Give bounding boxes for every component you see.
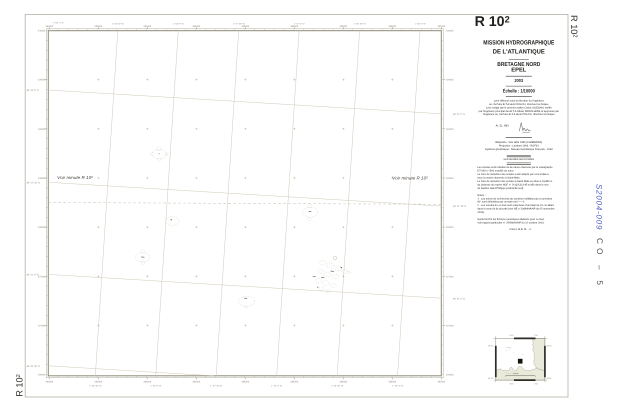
svg-text:427000: 427000 (446, 324, 454, 327)
svg-text:48°40': 48°40' (546, 344, 552, 347)
svg-text:430000: 430000 (446, 30, 454, 33)
svg-text:427500: 427500 (38, 275, 46, 278)
svg-text:1° 58' 0" W: 1° 58' 0" W (150, 384, 162, 387)
svg-text:285500: 285500 (291, 380, 299, 383)
svg-text:48° 41' 0" N: 48° 41' 0" N (26, 274, 38, 277)
svg-text:284500: 284500 (193, 380, 201, 383)
svg-text:286500: 286500 (389, 380, 397, 383)
svg-text:1° 56' 30" W: 1° 56' 30" W (354, 22, 367, 25)
svg-text:l'ingénieur en chef des E.T.A: l'ingénieur en chef des E.T.A Henri DOLO… (483, 113, 555, 116)
svg-text:284000: 284000 (144, 380, 152, 383)
svg-text:48°40': 48°40' (488, 344, 494, 347)
svg-text:428000: 428000 (38, 226, 46, 229)
svg-text:du bastion Saint-Philippe (ext: du bastion Saint-Philippe (extrémité sud… (477, 187, 524, 190)
svg-text:287000: 287000 (438, 380, 446, 383)
svg-text:Les sondes sont réelles: Les sondes sont réelles (504, 157, 535, 161)
svg-text:48° 41' 30" N: 48° 41' 30" N (453, 205, 467, 208)
svg-text:1°50': 1°50' (534, 383, 539, 386)
svg-text:R 102: R 102 (15, 374, 25, 397)
svg-text:48° 42' 0" N: 48° 42' 0" N (453, 113, 465, 116)
svg-text:1° 57' 30" W: 1° 57' 30" W (210, 384, 223, 387)
svg-text:48° 41' 30" N: 48° 41' 30" N (26, 181, 40, 184)
svg-text:CO – 5: CO – 5 (595, 238, 604, 289)
svg-text:2°00': 2°00' (509, 383, 514, 386)
svg-text:285000: 285000 (242, 25, 250, 28)
svg-text:1° 56' 30" W: 1° 56' 30" W (331, 384, 344, 387)
svg-text:1° 57' 30" W: 1° 57' 30" W (233, 22, 246, 25)
svg-text:DE L'ATLANTIQUE: DE L'ATLANTIQUE (493, 49, 545, 56)
svg-text:Voir minute R 10²: Voir minute R 10² (392, 176, 428, 181)
svg-text:428000: 428000 (446, 226, 454, 229)
svg-text:1°50': 1°50' (534, 334, 539, 337)
svg-text:283500: 283500 (95, 25, 103, 28)
svg-text:R 102: R 102 (475, 14, 510, 30)
svg-text:1° 58' 30" W: 1° 58' 30" W (89, 384, 102, 387)
svg-text:Ar. 21. 683: Ar. 21. 683 (496, 124, 510, 127)
svg-text:286500: 286500 (389, 25, 397, 28)
svg-text:429000: 429000 (38, 128, 46, 131)
svg-text:S2004-009: S2004-009 (594, 184, 603, 230)
svg-text:2003: 2003 (515, 78, 524, 83)
svg-text:1° 56' 0" W: 1° 56' 0" W (415, 22, 427, 25)
svg-text:283500: 283500 (95, 380, 103, 383)
svg-text:1° 56' 0" W: 1° 56' 0" W (392, 384, 404, 387)
svg-text:48° 42' 0" N: 48° 42' 0" N (26, 89, 38, 92)
svg-text:3 Sect. M.B. M. - 3: 3 Sect. M.B. M. - 3 (509, 228, 531, 231)
svg-text:dans le sens de la sécurité (v: dans le sens de la sécurité (voir NE n°1… (477, 208, 555, 211)
svg-text:285500: 285500 (291, 25, 299, 28)
svg-text:284000: 284000 (144, 25, 152, 28)
svg-text:Système géodésique : Réseau Gé: Système géodésique : Réseau Géodésique F… (485, 148, 553, 151)
svg-text:428500: 428500 (38, 177, 46, 180)
svg-text:1° 58' 0" W: 1° 58' 0" W (173, 22, 185, 25)
svg-text:48°35': 48°35' (546, 377, 552, 380)
svg-text:429500: 429500 (446, 79, 454, 82)
svg-text:427000: 427000 (38, 324, 46, 327)
svg-text:429000: 429000 (446, 128, 454, 131)
svg-text:286000: 286000 (340, 25, 348, 28)
svg-text:284500: 284500 (193, 25, 201, 28)
svg-text:48° 40' 30" N: 48° 40' 30" N (26, 365, 40, 368)
svg-text:Voir rapport particulier n° 25: Voir rapport particulier n° 256/MHA/NP d… (477, 221, 544, 224)
svg-text:Voir minute R 10²: Voir minute R 10² (57, 175, 93, 180)
svg-text:287000: 287000 (438, 25, 446, 28)
svg-text:R 102: R 102 (569, 15, 579, 38)
svg-text:1° 59' 2" W: 1° 59' 2" W (53, 22, 65, 25)
svg-text:1° 57' 0" W: 1° 57' 0" W (271, 384, 283, 387)
svg-text:428500: 428500 (446, 177, 454, 180)
svg-text:429500: 429500 (38, 79, 46, 82)
svg-text:430000: 430000 (38, 30, 46, 33)
svg-text:1° 58' 30" W: 1° 58' 30" W (112, 22, 125, 25)
svg-text:EPEL: EPEL (511, 68, 527, 74)
svg-text:48°35': 48°35' (488, 377, 494, 380)
svg-text:1° 57' 0" W: 1° 57' 0" W (294, 22, 306, 25)
svg-text:48° 41' 0" N: 48° 41' 0" N (453, 297, 465, 300)
svg-text:283000: 283000 (46, 25, 54, 28)
svg-text:MISSION HYDROGRAPHIQUE: MISSION HYDROGRAPHIQUE (483, 39, 554, 46)
svg-text:426500: 426500 (446, 374, 454, 377)
svg-text:427500: 427500 (446, 275, 454, 278)
svg-text:Échelle : 1/10000: Échelle : 1/10000 (503, 87, 535, 94)
svg-text:2003).: 2003). (477, 211, 485, 214)
svg-text:426500: 426500 (38, 374, 46, 377)
svg-text:2°00': 2°00' (509, 334, 514, 337)
svg-text:286000: 286000 (340, 380, 348, 383)
svg-text:285000: 285000 (242, 380, 250, 383)
svg-text:283000: 283000 (46, 380, 54, 383)
